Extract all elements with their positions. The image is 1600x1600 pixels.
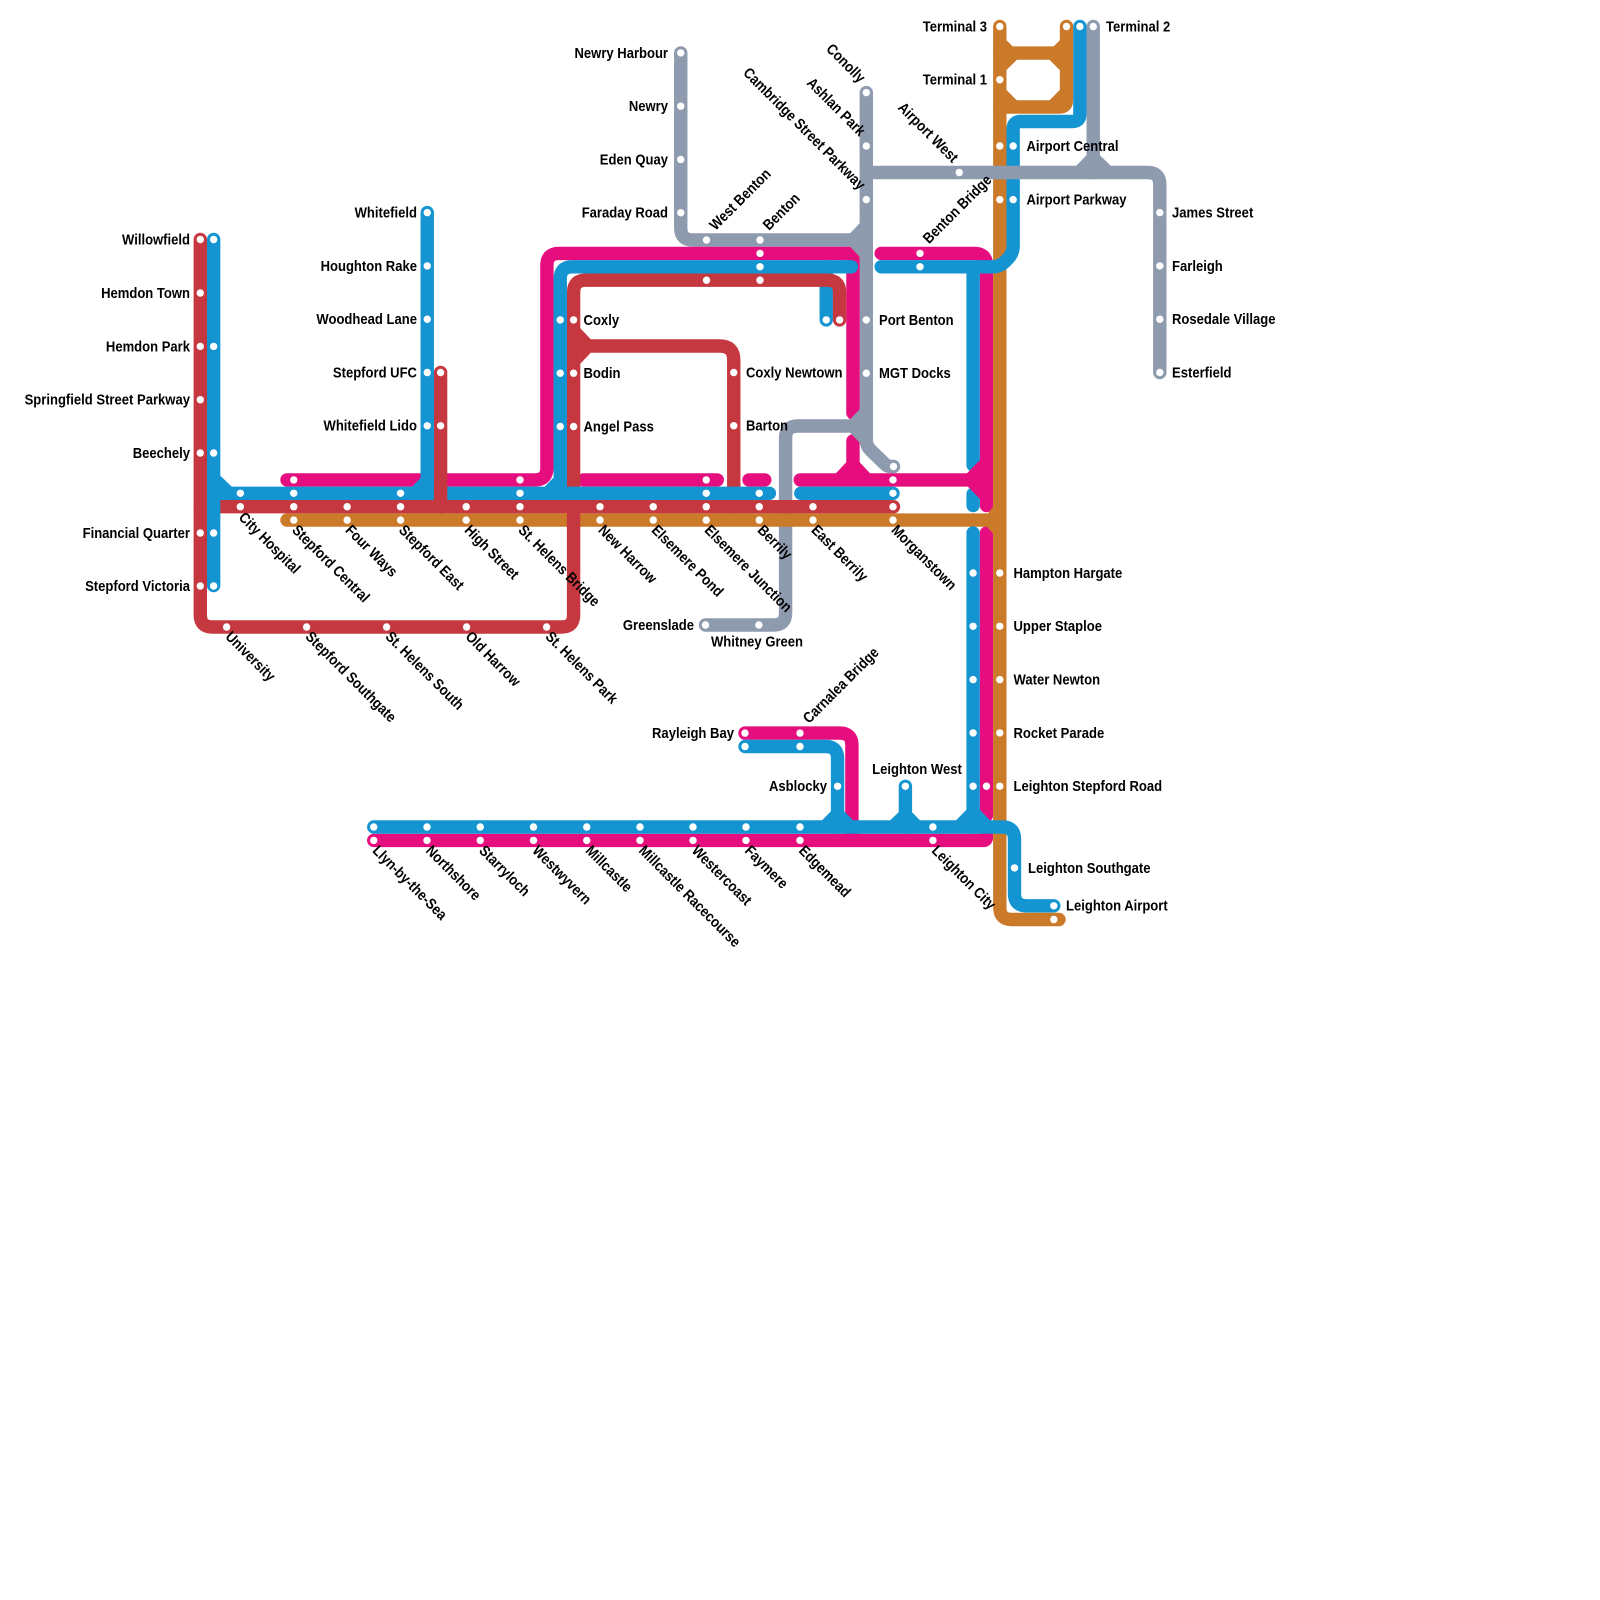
svg-text:Willowfield: Willowfield: [122, 231, 190, 248]
svg-text:Esterfield: Esterfield: [1172, 364, 1232, 381]
svg-text:Greenslade: Greenslade: [623, 617, 694, 634]
svg-text:Newry: Newry: [629, 98, 669, 115]
svg-text:Whitefield: Whitefield: [355, 205, 417, 222]
svg-text:Newry Harbour: Newry Harbour: [575, 45, 669, 62]
svg-text:Stepford UFC: Stepford UFC: [333, 364, 417, 381]
svg-text:Financial Quarter: Financial Quarter: [83, 525, 191, 542]
svg-text:Barton: Barton: [746, 418, 788, 435]
svg-text:Leighton West: Leighton West: [872, 761, 962, 778]
svg-text:Coxly: Coxly: [584, 312, 620, 329]
svg-text:MGT Docks: MGT Docks: [879, 365, 951, 382]
svg-text:Airport Parkway: Airport Parkway: [1027, 192, 1128, 209]
svg-text:Houghton Rake: Houghton Rake: [321, 258, 417, 275]
svg-text:James Street: James Street: [1172, 205, 1253, 222]
svg-text:Rocket Parade: Rocket Parade: [1014, 725, 1105, 742]
svg-text:Whitefield Lido: Whitefield Lido: [324, 418, 418, 435]
svg-text:Terminal 1: Terminal 1: [923, 72, 987, 89]
svg-text:Bodin: Bodin: [584, 365, 621, 382]
svg-text:Port Benton: Port Benton: [879, 312, 954, 329]
svg-text:Leighton Southgate: Leighton Southgate: [1028, 860, 1151, 877]
svg-text:Hemdon Town: Hemdon Town: [101, 285, 190, 302]
svg-text:Springfield Street Parkway: Springfield Street Parkway: [25, 392, 191, 409]
svg-text:Airport Central: Airport Central: [1027, 138, 1119, 155]
svg-text:Coxly Newtown: Coxly Newtown: [746, 364, 843, 381]
svg-text:Faraday Road: Faraday Road: [582, 205, 668, 222]
svg-text:Woodhead Lane: Woodhead Lane: [316, 311, 417, 328]
svg-text:Rosedale Village: Rosedale Village: [1172, 311, 1276, 328]
svg-text:Water Newton: Water Newton: [1014, 672, 1101, 689]
svg-text:Terminal 2: Terminal 2: [1106, 18, 1170, 35]
svg-text:Stepford Victoria: Stepford Victoria: [85, 578, 190, 595]
svg-text:Hemdon Park: Hemdon Park: [106, 338, 191, 355]
svg-text:Asblocky: Asblocky: [769, 778, 828, 795]
svg-text:Rayleigh Bay: Rayleigh Bay: [652, 725, 735, 742]
svg-text:Leighton Airport: Leighton Airport: [1066, 898, 1168, 915]
svg-text:Whitney Green: Whitney Green: [711, 634, 803, 651]
svg-text:Terminal 3: Terminal 3: [923, 18, 987, 35]
svg-text:Angel Pass: Angel Pass: [584, 418, 654, 435]
svg-text:Leighton Stepford Road: Leighton Stepford Road: [1014, 778, 1163, 795]
svg-text:Eden Quay: Eden Quay: [600, 151, 669, 168]
svg-text:Upper Staploe: Upper Staploe: [1014, 618, 1103, 635]
svg-text:Beechely: Beechely: [133, 445, 191, 462]
svg-text:Farleigh: Farleigh: [1172, 258, 1223, 275]
svg-text:Hampton Hargate: Hampton Hargate: [1014, 565, 1123, 582]
